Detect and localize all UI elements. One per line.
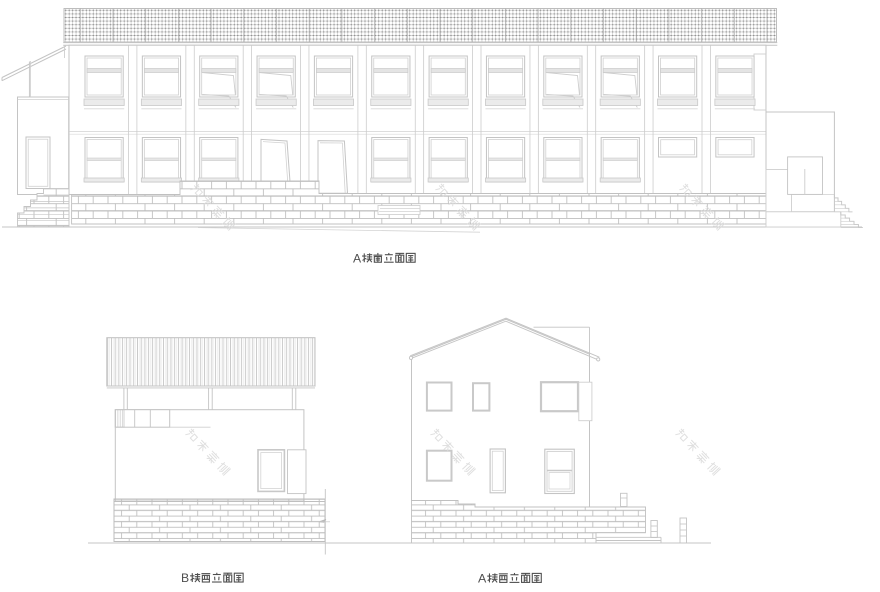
svg-text:A: A <box>353 251 362 265</box>
svg-text:B: B <box>181 571 189 585</box>
svg-text:A: A <box>478 571 487 585</box>
